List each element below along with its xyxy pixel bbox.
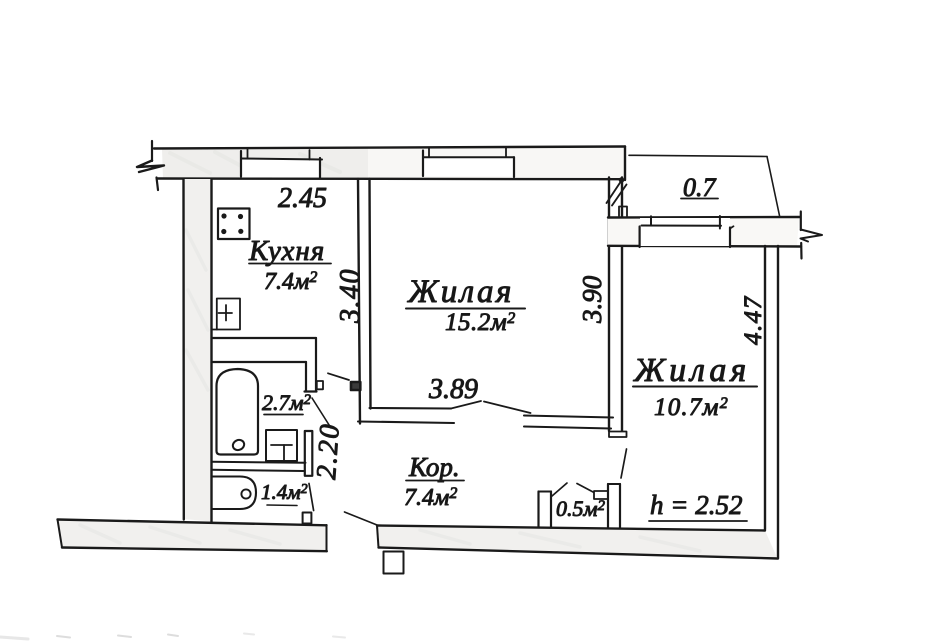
- svg-text:Жилая: Жилая: [407, 274, 514, 310]
- svg-text:2.45: 2.45: [278, 183, 327, 214]
- svg-text:Кор.: Кор.: [408, 452, 460, 482]
- svg-text:4.47: 4.47: [740, 295, 767, 345]
- svg-text:h = 2.52: h = 2.52: [650, 490, 742, 520]
- svg-text:3.90: 3.90: [577, 275, 607, 324]
- svg-text:15.2м2: 15.2м2: [445, 309, 516, 336]
- svg-text:10.7м2: 10.7м2: [654, 394, 729, 421]
- svg-text:2.20: 2.20: [311, 421, 346, 480]
- svg-text:3.40: 3.40: [335, 268, 366, 324]
- svg-text:Кухня: Кухня: [248, 235, 325, 267]
- svg-text:Жилая: Жилая: [633, 352, 750, 389]
- svg-text:3.89: 3.89: [428, 374, 478, 405]
